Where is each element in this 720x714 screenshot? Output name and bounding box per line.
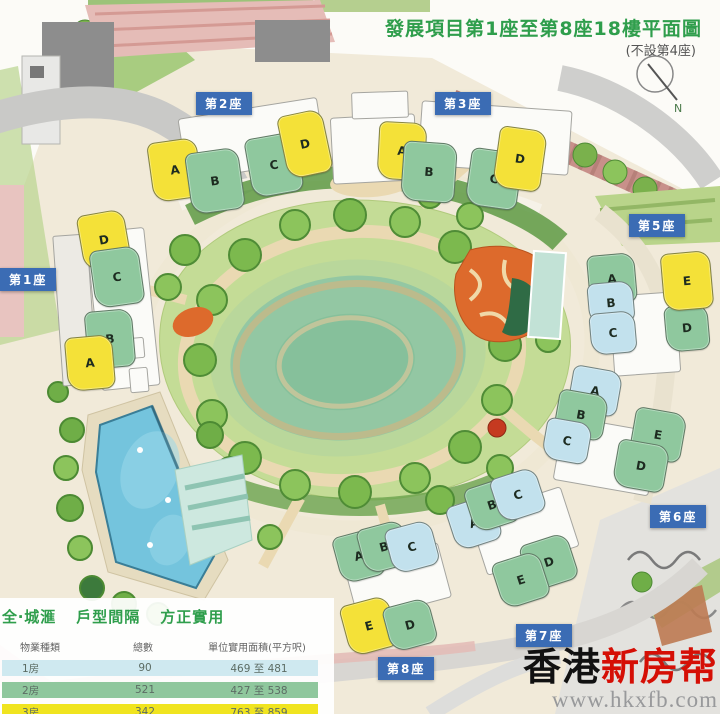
cell-area: 469 至 481 [184,661,334,676]
tower-2-unit-B: B [184,147,246,216]
table-row-1房: 1房90469 至 481 [2,660,318,676]
col-property-type: 物業種類 [0,639,104,654]
tower-2-badge: 第2座 [196,92,252,115]
tower-1-unit-A: A [64,334,117,392]
cell-count: 90 [106,662,184,674]
tower-1-unit-C: C [88,245,146,309]
unit-table-body: 1房90469 至 4812房521427 至 5383房342763 至 85… [0,660,334,714]
compass-icon: N [630,50,700,120]
tower-5-badge: 第5座 [629,214,685,237]
watermark-brand: 香港新房帮 [523,648,718,688]
col-saleable-area: 單位實用面積(平方呎) [182,639,332,654]
cell-area: 763 至 859 [184,705,334,714]
marketing-heading: 全‧城滙 戶型間隔 方正實用 [2,606,334,627]
site-plan-page: DCBAABCDABCDABCDEABCEDABCDEABCED 第1座第2座第… [0,0,720,714]
table-row-3房: 3房342763 至 859 [2,704,318,714]
cell-count: 521 [106,684,184,696]
tower-3-unit-B: B [400,140,458,204]
tower-1-badge: 第1座 [0,268,56,291]
watermark-url: www.hkxfb.com [523,688,718,712]
cell-type: 1房 [2,661,106,676]
tower-3-unit-D: D [492,125,548,193]
compass-north-label: N [674,102,682,115]
page-title: 發展項目第1座至第8座18樓平面圖 [385,14,702,41]
cell-type: 2房 [2,683,106,698]
tower-6-unit-D: D [611,438,671,494]
cell-area: 427 至 538 [184,683,334,698]
watermark-brand-red: 新房帮 [601,647,718,689]
table-header: 物業種類 總數 單位實用面積(平方呎) [0,639,334,654]
cell-count: 342 [106,706,184,714]
tower-6-badge: 第6座 [650,505,706,528]
tower-5-unit-C: C [588,310,637,356]
tower-8-badge: 第8座 [378,657,434,680]
watermark-brand-black: 香港 [523,647,601,689]
tower-7-badge: 第7座 [516,624,572,647]
tower-5-unit-D: D [663,303,711,353]
unit-mix-table: 物業種類 總數 單位實用面積(平方呎) 1房90469 至 4812房52142… [0,639,334,714]
development-name: 全‧城滙 [2,606,56,627]
slogan-2: 方正實用 [160,606,224,627]
slogan-1: 戶型間隔 [76,606,140,627]
watermark: 香港新房帮 www.hkxfb.com [523,648,720,712]
tower-3-badge: 第3座 [435,92,491,115]
cell-type: 3房 [2,705,106,714]
unit-mix-panel: 全‧城滙 戶型間隔 方正實用 物業種類 總數 單位實用面積(平方呎) 1房904… [0,598,334,714]
table-row-2房: 2房521427 至 538 [2,682,318,698]
tower-5-unit-E: E [660,250,715,312]
col-total-count: 總數 [104,639,182,654]
